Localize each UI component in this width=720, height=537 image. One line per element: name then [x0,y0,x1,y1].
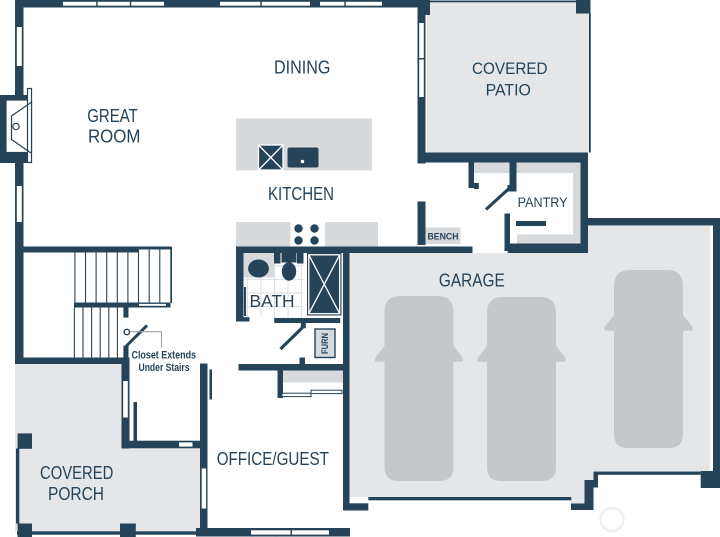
svg-text:DINING: DINING [274,56,330,77]
svg-text:ROOM: ROOM [88,125,141,146]
svg-text:GREAT: GREAT [87,105,138,126]
svg-text:Under Stairs: Under Stairs [139,362,190,374]
svg-text:COVERED: COVERED [472,60,548,78]
svg-text:PORCH: PORCH [48,483,104,504]
svg-text:OFFICE/GUEST: OFFICE/GUEST [217,448,329,469]
svg-text:PANTRY: PANTRY [518,195,568,210]
svg-text:BENCH: BENCH [428,232,459,243]
svg-text:COVERED: COVERED [40,462,113,483]
svg-text:KITCHEN: KITCHEN [268,183,334,204]
svg-text:BATH: BATH [250,291,295,311]
svg-text:PATIO: PATIO [486,82,531,100]
svg-text:Closet Extends: Closet Extends [132,350,197,362]
svg-text:GARAGE: GARAGE [439,270,505,291]
svg-text:FURN: FURN [320,333,330,354]
